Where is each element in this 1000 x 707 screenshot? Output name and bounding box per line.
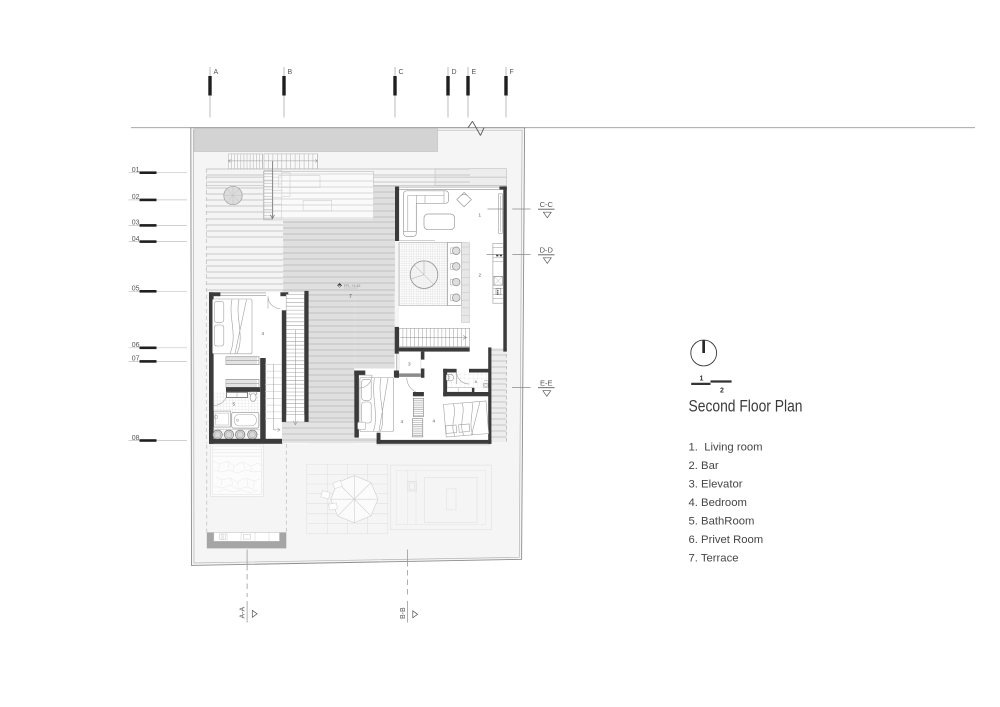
svg-text:1: 1 (700, 375, 704, 382)
svg-text:3: 3 (408, 362, 411, 367)
svg-text:2. Bar: 2. Bar (689, 460, 719, 472)
svg-text:4: 4 (401, 419, 404, 424)
svg-text:C-C: C-C (540, 200, 554, 209)
svg-text:4: 4 (433, 419, 436, 424)
svg-text:A-A: A-A (239, 607, 246, 619)
svg-text:7. Terrace: 7. Terrace (689, 552, 739, 564)
svg-text:1. Living room: 1. Living room (689, 442, 763, 454)
svg-text:5: 5 (233, 402, 236, 407)
svg-text:C: C (399, 69, 404, 76)
svg-text:4: 4 (262, 331, 265, 336)
svg-text:3. Elevator: 3. Elevator (689, 479, 743, 491)
svg-text:6. Privet Room: 6. Privet Room (689, 534, 764, 546)
svg-text:Second Floor Plan: Second Floor Plan (689, 398, 803, 416)
svg-text:2: 2 (479, 273, 482, 278)
svg-text:2: 2 (720, 388, 724, 395)
svg-text:B: B (288, 69, 293, 76)
svg-text:E-E: E-E (540, 379, 553, 388)
svg-text:D: D (452, 69, 457, 76)
svg-text:1: 1 (479, 213, 482, 218)
svg-text:4. Bedroom: 4. Bedroom (689, 497, 747, 509)
svg-text:5. BathRoom: 5. BathRoom (689, 516, 755, 528)
svg-text:F: F (510, 69, 514, 76)
svg-text:E: E (472, 69, 477, 76)
svg-text:B-B: B-B (400, 607, 407, 619)
svg-text:A: A (214, 69, 219, 76)
svg-text:D-D: D-D (540, 246, 554, 255)
svg-text:FFL +3.45: FFL +3.45 (344, 284, 360, 288)
svg-text:7: 7 (349, 294, 352, 300)
